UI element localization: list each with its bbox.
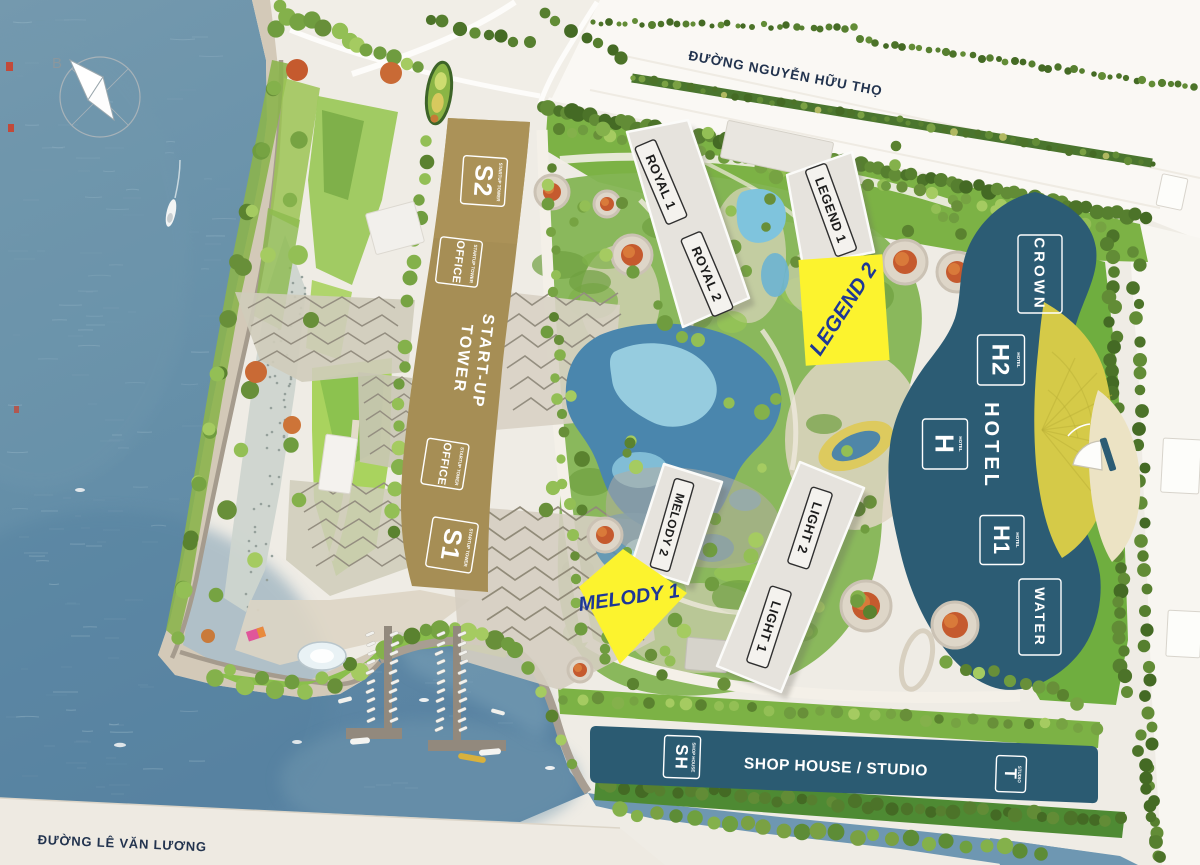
svg-text:S1: S1 <box>435 527 468 564</box>
svg-text:HOTEL: HOTEL <box>1016 352 1021 368</box>
svg-text:H2: H2 <box>986 344 1013 377</box>
svg-text:H1: H1 <box>989 525 1014 555</box>
svg-text:SH: SH <box>671 744 691 770</box>
svg-text:STUDIO: STUDIO <box>1017 766 1023 784</box>
svg-text:HOTEL: HOTEL <box>958 436 963 452</box>
svg-text:HOTEL: HOTEL <box>1015 532 1020 548</box>
svg-text:WATER: WATER <box>1032 587 1048 647</box>
svg-text:CROWN: CROWN <box>1031 237 1048 310</box>
svg-text:SHOP HOUSE: SHOP HOUSE <box>690 742 696 772</box>
svg-text:S2: S2 <box>468 164 498 198</box>
svg-text:HOTEL: HOTEL <box>980 402 1002 490</box>
svg-text:B: B <box>52 55 62 72</box>
svg-text:H: H <box>930 434 960 454</box>
